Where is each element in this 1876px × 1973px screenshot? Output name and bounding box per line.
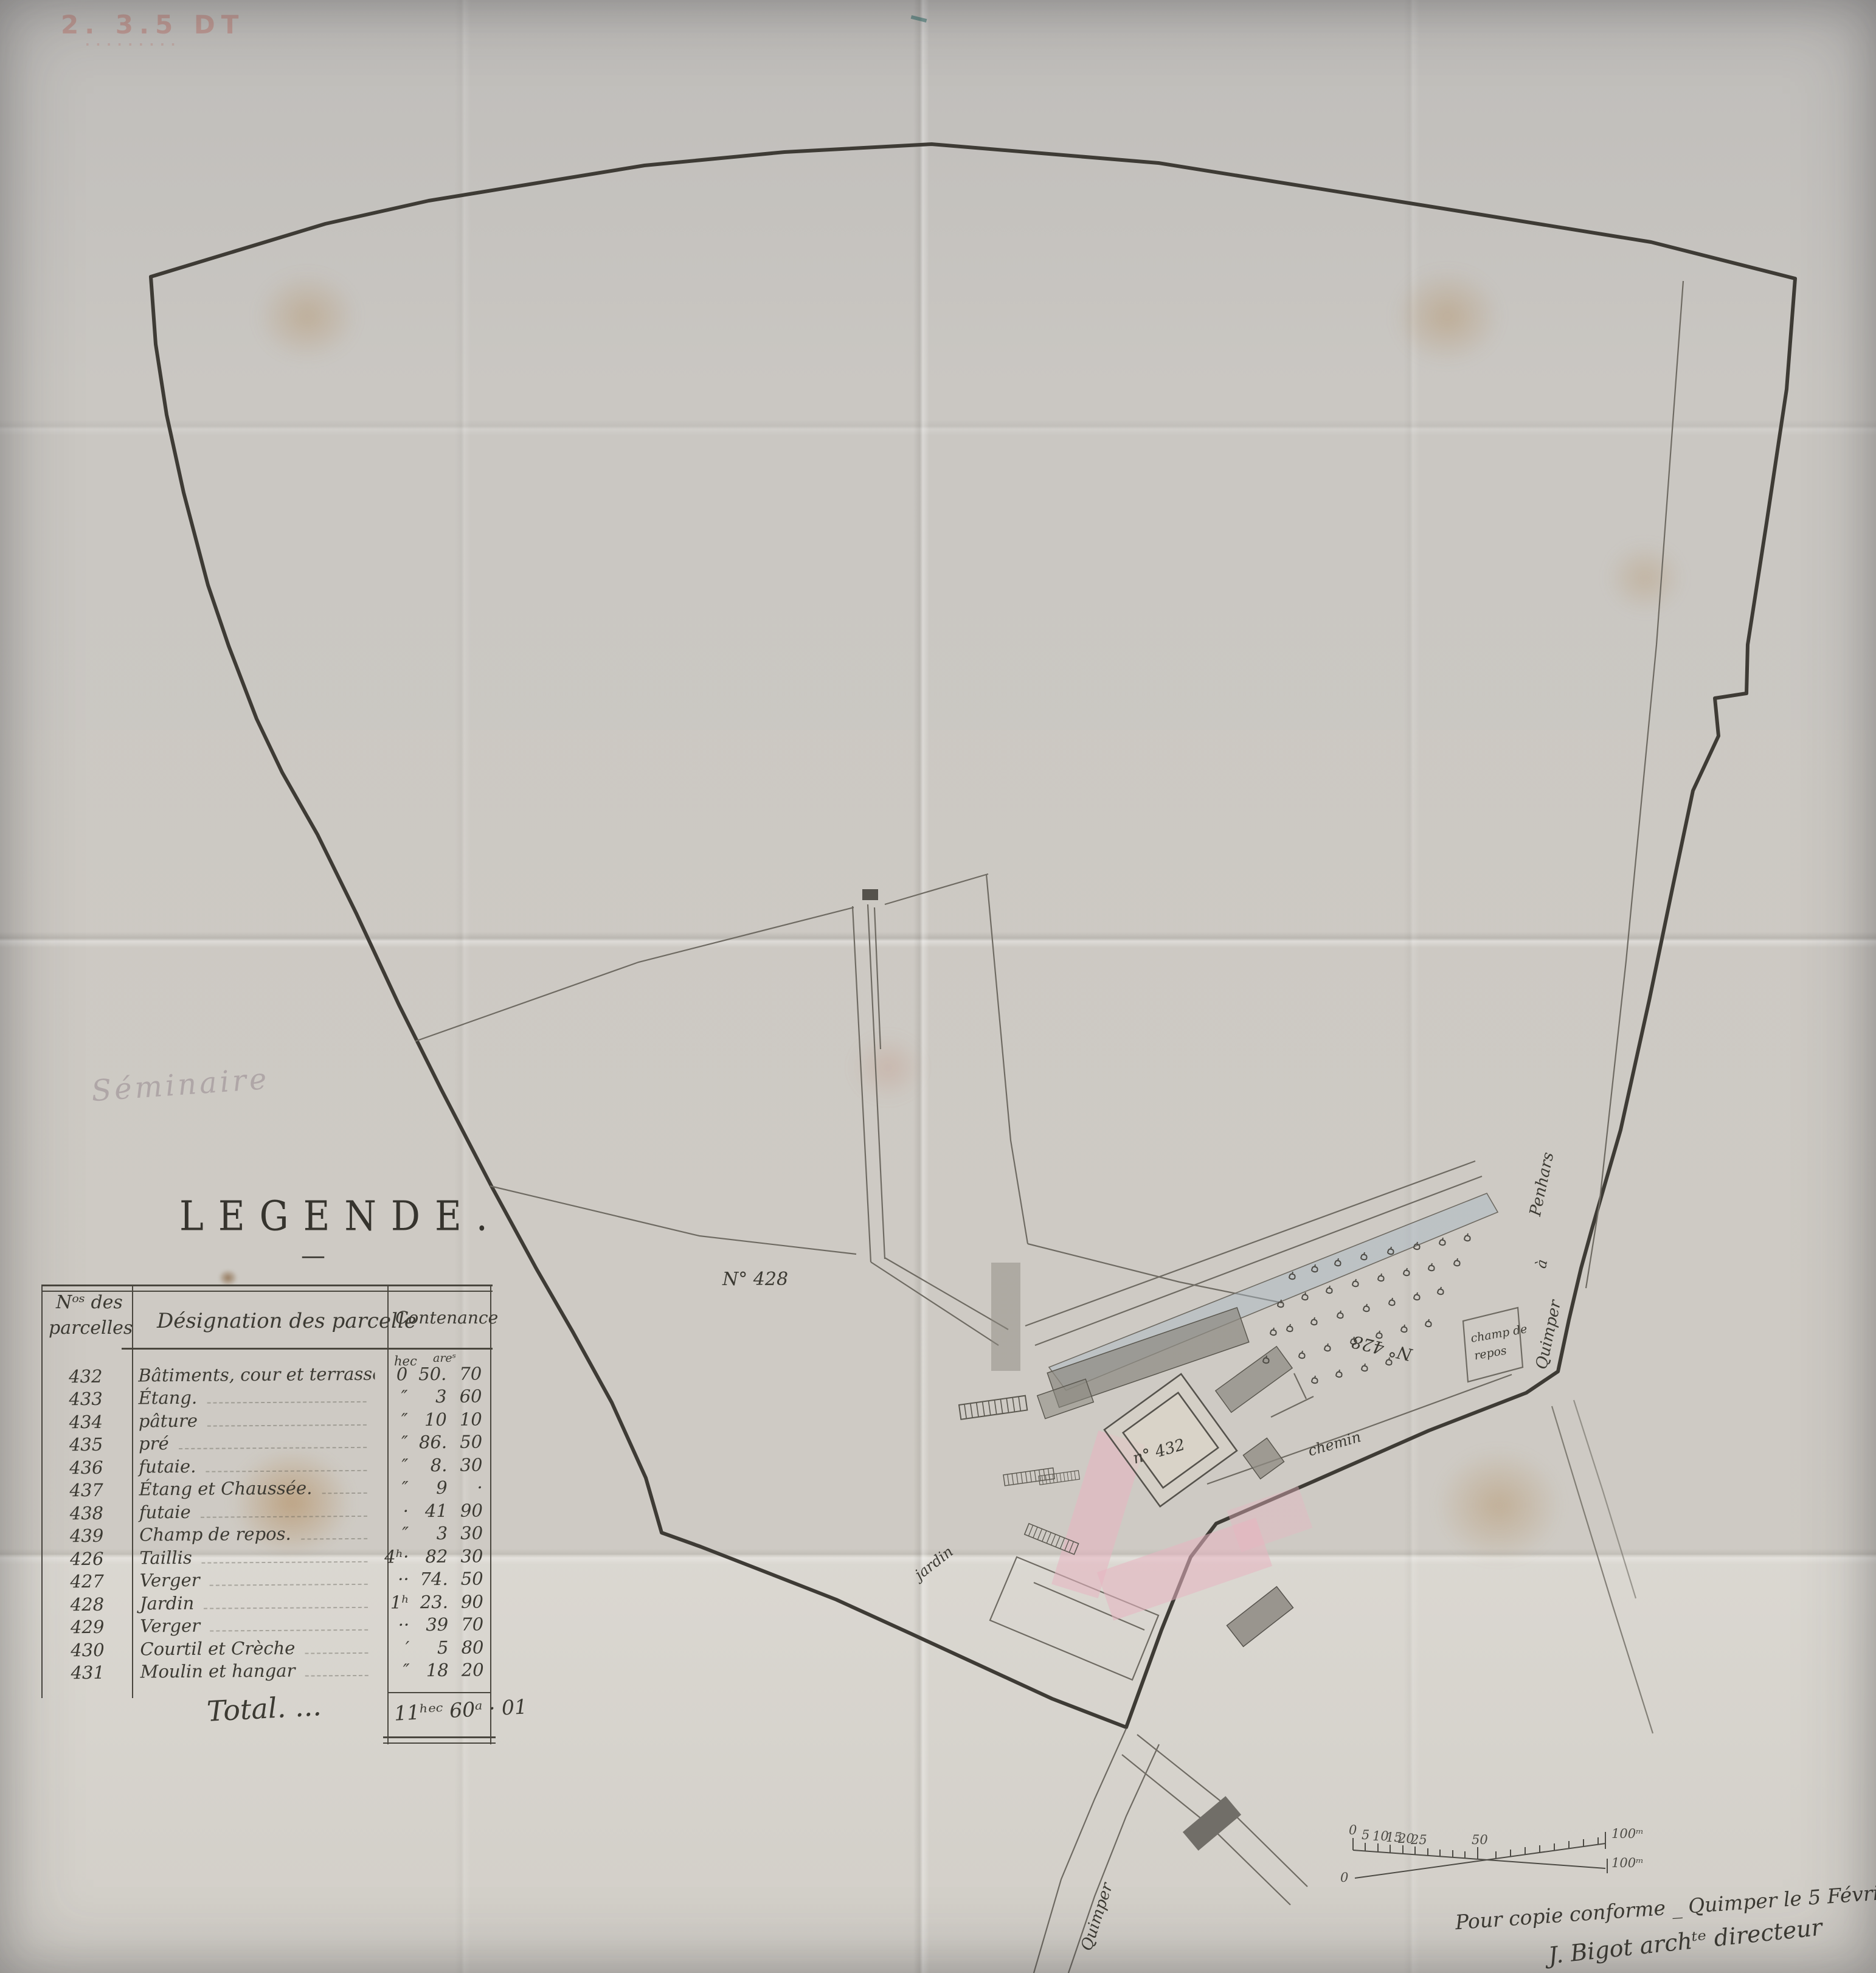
legend-table-border [122,1348,493,1350]
leader-dashes [301,1538,367,1540]
legend-parcel-row: 432 Bâtiments, cour et terrasse 0 50. 70 [41,1362,488,1388]
parcel-number: 426 [43,1548,131,1569]
legend-table-border [383,1736,496,1738]
parcel-ares: 41 [409,1500,448,1521]
parcel-designation: pré [139,1433,169,1454]
small-building-lane-top [862,889,878,900]
leader-dashes [210,1584,368,1586]
svg-text:5: 5 [1362,1828,1369,1842]
legend-parcel-row: 434 pâture ″ 10 10 [42,1407,488,1434]
legend-parcel-row: 433 Étang. ″ 3 60 [41,1385,488,1411]
parcel-number: 429 [43,1617,131,1638]
parcel-number: 431 [44,1662,132,1683]
legend-parcel-row: 437 Étang et Chaussée. ″ 9 · [42,1476,488,1502]
leader-dashes [204,1607,368,1609]
leader-dashes [305,1675,368,1677]
legend-col-contenance: Contenance [395,1308,498,1328]
svg-text:0: 0 [1340,1870,1348,1885]
parcel-hectares: ″ [376,1524,409,1544]
parcel-hectares: ″ [375,1432,408,1453]
parcel-hectares: ·· [376,1615,409,1635]
parcel-number: 427 [43,1571,131,1592]
legend-parcel-row: 429 Verger ·· 39 70 [43,1613,490,1639]
parcel-hectares: 1ʰ [376,1592,409,1612]
leader-dashes [206,1470,367,1472]
parcel-ares: 8. [408,1455,447,1475]
parcel-hectares: ″ [375,1387,407,1407]
parcel-hectares: 0 [375,1364,407,1384]
parcel-number: 438 [43,1502,131,1524]
parcel-centiares: 20 [449,1660,490,1680]
parcel-hectares: 4ʰ· [376,1546,409,1567]
parcel-ares: 5 [409,1637,448,1658]
parcel-designation: Jardin [140,1593,195,1614]
stairs-hatch-symbols [959,1396,1079,1555]
parcel-number: 432 [41,1365,130,1387]
parcel-designation: Champ de repos. [139,1524,291,1545]
legend-parcel-row: 430 Courtil et Crèche ′ 5 80 [43,1635,490,1662]
legend-parcel-row: 439 Champ de repos. ″ 3 30 [43,1522,489,1548]
legend-col-parcel-numbers-2: parcelles [49,1317,133,1339]
parcel-label-428-left: N° 428 [722,1269,788,1290]
leader-dashes [201,1516,367,1518]
parcel-ares: 74. [409,1569,448,1589]
parcel-designation: Bâtiments, cour et terrasse [138,1363,375,1385]
legend-title: LEGENDE. [179,1193,502,1240]
parcel-ares: 10 [408,1409,447,1430]
parcel-hectares: ″ [375,1478,408,1499]
parcel-number: 435 [42,1434,130,1455]
parcel-and-road-lines [415,281,1683,1973]
parcel-designation: Verger [140,1615,200,1637]
leader-dashes [207,1401,366,1404]
legend-parcel-rows: 432 Bâtiments, cour et terrasse 0 50. 70… [41,1362,490,1684]
parcel-hectares: ·· [376,1569,409,1590]
leader-dashes [179,1447,367,1449]
legend-total-label: Total. ... [206,1689,322,1728]
parcel-number: 428 [43,1593,131,1615]
parcel-designation: pâture [139,1410,198,1432]
parcel-centiares: 60 [446,1386,488,1407]
legend-parcel-row: 427 Verger ·· 74. 50 [43,1567,490,1593]
small-building-southeast [1227,1587,1293,1647]
parcel-hectares: · [376,1500,409,1521]
parcel-centiares: 90 [448,1500,489,1520]
parcel-centiares: 90 [448,1591,490,1612]
parcel-centiares: 80 [448,1637,490,1657]
svg-text:100ᵐ: 100ᵐ [1611,1856,1644,1870]
legend-table-border [387,1692,491,1693]
parcel-designation: Verger [140,1570,200,1591]
parcel-centiares: 70 [448,1614,490,1635]
parcel-centiares: · [447,1477,488,1498]
legend-parcel-row: 435 pré ″ 86. 50 [42,1430,488,1457]
svg-text:25: 25 [1410,1833,1427,1847]
archive-stamp-line2: ......... [85,34,181,49]
parcel-ares: 3 [409,1523,448,1544]
svg-text:100ᵐ: 100ᵐ [1611,1826,1644,1841]
parcel-designation: Moulin et hangar [140,1660,296,1682]
svg-text:50: 50 [1472,1833,1488,1847]
parcel-designation: Étang. [138,1387,197,1409]
parcel-designation: futaie. [139,1456,196,1477]
legend-col-parcel-numbers: Nᵒˢ des [56,1292,123,1313]
parcel-number: 433 [41,1389,130,1410]
small-building-bottom-road [1183,1796,1241,1851]
parcel-centiares: 70 [446,1363,488,1384]
parcel-centiares: 50 [447,1432,488,1452]
orchard-tree-symbols [1263,1233,1470,1383]
parcel-number: 439 [43,1525,131,1547]
parcel-designation: Courtil et Crèche [140,1637,295,1659]
parcel-ares: 86. [408,1432,447,1452]
legend-col-designation: Désignation des parcelle [157,1309,417,1333]
parcel-ares: 50. [407,1364,446,1384]
parcel-ares: 23. [409,1592,448,1612]
legend-table-border [41,1285,493,1286]
parcel-number: 436 [42,1457,130,1478]
parcel-ares: 18 [410,1660,449,1680]
legend-parcel-row: 428 Jardin 1ʰ 23. 90 [43,1590,490,1616]
parcel-number: 430 [43,1639,131,1660]
leader-dashes [305,1652,368,1654]
parcel-centiares: 10 [447,1409,488,1429]
leader-dashes [202,1561,368,1564]
parcel-ares: 3 [407,1386,446,1407]
parcel-designation: Taillis [139,1547,192,1569]
leader-dashes [210,1629,368,1632]
leader-dashes [322,1493,367,1494]
parcel-hectares: ″ [375,1455,408,1475]
parcel-centiares: 30 [448,1545,489,1566]
svg-text:0: 0 [1349,1823,1357,1837]
legend-parcel-row: 438 futaie · 41 90 [43,1499,489,1525]
scanned-cadastral-plan: 0 5 10 15 20 25 50 100ᵐ 100ᵐ 0 2. 3.5 DT… [0,0,1876,1973]
parcel-hectares: ″ [375,1409,408,1430]
leader-dashes [207,1424,367,1427]
parcel-hectares: ″ [377,1660,410,1681]
legend-title-underline: — [301,1242,325,1270]
parcel-ares: 82 [409,1546,448,1567]
parcel-number: 437 [42,1480,130,1501]
parcel-ares: 39 [409,1614,448,1635]
parcel-ares: 9 [408,1477,447,1498]
legend-table-border [383,1742,496,1744]
legend-parcel-row: 431 Moulin et hangar ″ 18 20 [44,1659,490,1685]
parcel-hectares: ′ [376,1637,409,1658]
parcel-centiares: 50 [448,1569,490,1589]
parcel-centiares: 30 [448,1523,489,1544]
legend-parcel-row: 436 futaie. ″ 8. 30 [42,1453,488,1479]
legend-table-border [490,1285,491,1744]
scale-bar-labels: 0 5 10 15 20 25 50 100ᵐ 100ᵐ 0 [1340,1823,1644,1885]
parcel-centiares: 30 [447,1454,488,1475]
parcel-number: 434 [42,1411,130,1432]
legend-parcel-row: 426 Taillis 4ʰ· 82 30 [43,1544,489,1570]
parcel-designation: Étang et Chaussée. [139,1478,312,1500]
parcel-designation: futaie [139,1502,191,1523]
